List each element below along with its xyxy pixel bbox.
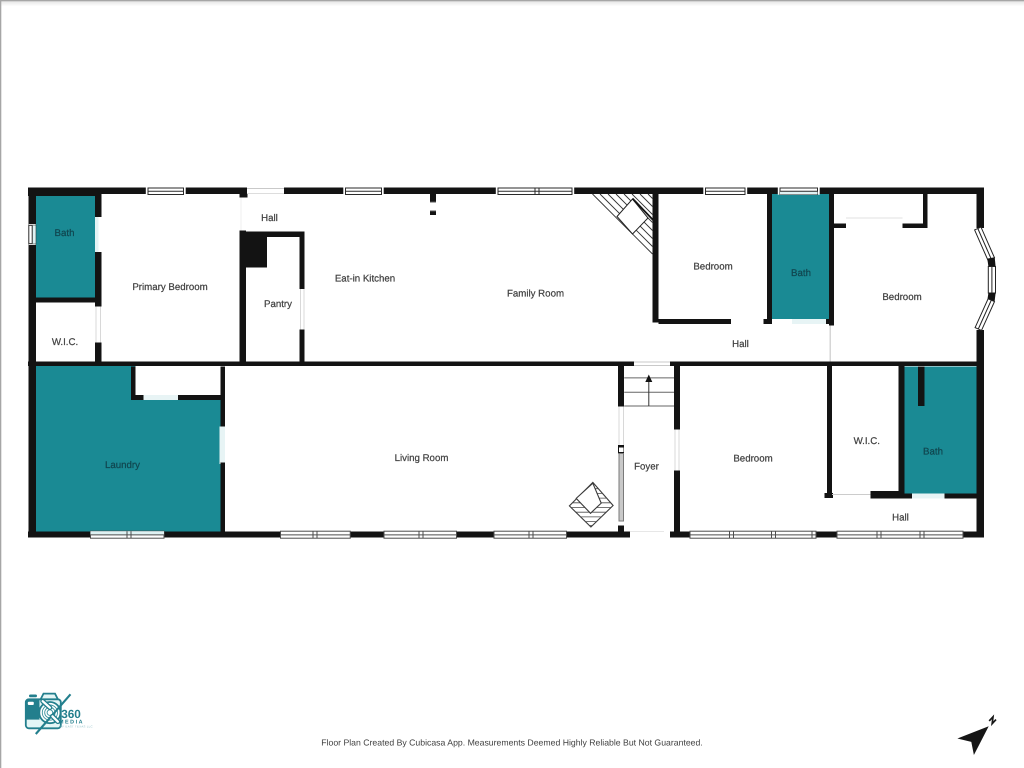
svg-text:W.I.C.: W.I.C. — [854, 436, 880, 447]
svg-text:Pantry: Pantry — [264, 299, 292, 310]
svg-text:Eat-in Kitchen: Eat-in Kitchen — [335, 274, 395, 285]
svg-text:Bath: Bath — [923, 447, 943, 458]
svg-text:Foyer: Foyer — [634, 462, 660, 473]
svg-text:Hall: Hall — [261, 213, 278, 224]
svg-text:Hall: Hall — [732, 339, 749, 350]
svg-text:Laundry: Laundry — [105, 460, 140, 471]
svg-text:Bath: Bath — [55, 228, 75, 239]
svg-text:W.I.C.: W.I.C. — [52, 337, 78, 348]
svg-text:Hall: Hall — [892, 513, 909, 524]
svg-text:OF EAST TEXAS LLC: OF EAST TEXAS LLC — [60, 724, 93, 728]
svg-text:Primary Bedroom: Primary Bedroom — [132, 282, 207, 293]
svg-text:Bath: Bath — [791, 268, 811, 279]
svg-text:Family Room: Family Room — [507, 289, 564, 300]
svg-text:Floor Plan Created By Cubicasa: Floor Plan Created By Cubicasa App. Meas… — [321, 738, 702, 748]
svg-text:Bedroom: Bedroom — [882, 292, 921, 303]
svg-text:Bedroom: Bedroom — [693, 262, 732, 273]
svg-text:Bedroom: Bedroom — [733, 454, 772, 465]
svg-text:Living Room: Living Room — [395, 453, 449, 464]
